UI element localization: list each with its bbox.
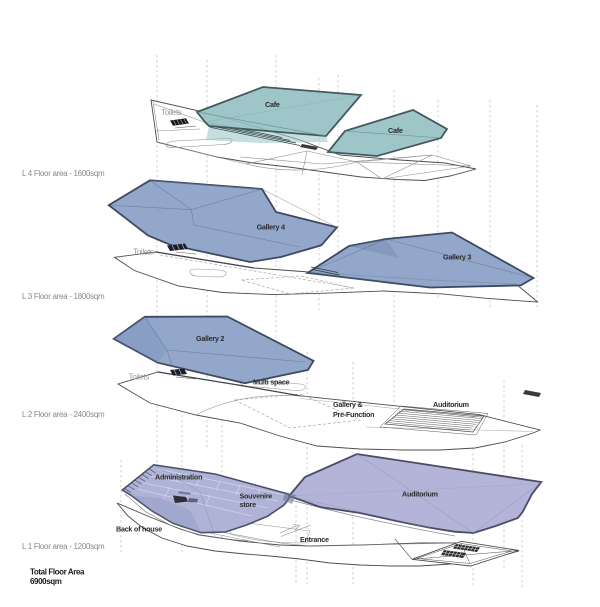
svg-text:Back of house: Back of house: [116, 525, 162, 534]
svg-text:Gallery 3: Gallery 3: [443, 253, 471, 262]
svg-text:Toilets: Toilets: [133, 248, 154, 257]
svg-text:Cafe: Cafe: [265, 100, 280, 109]
svg-text:L 2 Floor area - 2400sqm: L 2 Floor area - 2400sqm: [22, 410, 105, 419]
svg-text:Entrance: Entrance: [300, 535, 329, 544]
svg-text:Auditorium: Auditorium: [433, 400, 469, 409]
svg-text:Pre-Function: Pre-Function: [333, 410, 374, 419]
svg-text:Cafe: Cafe: [388, 126, 403, 135]
svg-text:6900sqm: 6900sqm: [30, 577, 62, 586]
svg-text:Gallery 2: Gallery 2: [196, 334, 224, 343]
svg-text:L 4 Floor area - 1600sqm: L 4 Floor area - 1600sqm: [22, 169, 105, 178]
svg-text:L 3 Floor area - 1800sqm: L 3 Floor area - 1800sqm: [22, 292, 105, 301]
svg-text:store: store: [240, 500, 257, 509]
svg-text:Administration: Administration: [155, 473, 202, 482]
svg-text:Gallery &: Gallery &: [333, 400, 362, 409]
svg-text:L 1 Floor area - 1200sqm: L 1 Floor area - 1200sqm: [22, 542, 105, 551]
svg-text:Gallery 4: Gallery 4: [257, 223, 285, 232]
svg-text:Total Floor Area: Total Floor Area: [30, 568, 85, 577]
svg-text:Auditorium: Auditorium: [402, 490, 438, 499]
svg-text:Multi space: Multi space: [253, 378, 290, 387]
svg-text:Toilets: Toilets: [129, 373, 150, 382]
svg-text:Toilets: Toilets: [161, 108, 182, 117]
